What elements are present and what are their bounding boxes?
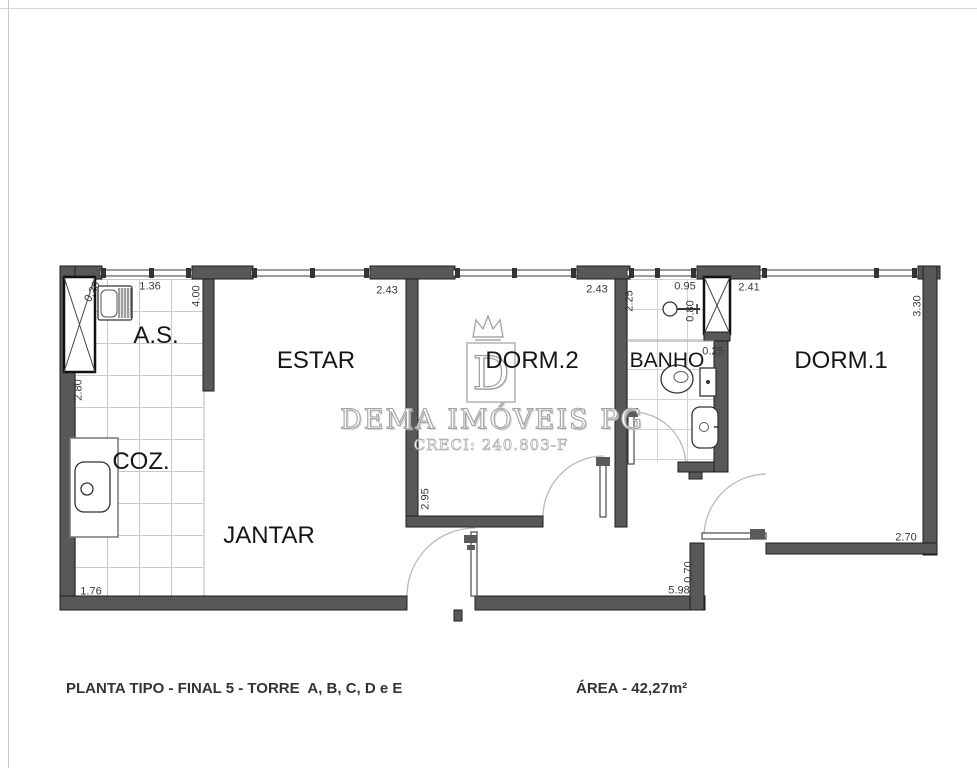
dimension-banho-depth: 2.25 [625, 290, 636, 311]
dimension-as-left: 2.80 [74, 379, 85, 400]
dimension-estar-window: 2.43 [376, 286, 397, 297]
dimension-estar-depth: 4.00 [192, 285, 203, 306]
dimension-bottom-wall: 5.98 [668, 586, 689, 597]
dorm2-door [596, 457, 610, 517]
dimension-dorm1-window: 2.41 [738, 283, 759, 294]
dimension-as-window: 1.36 [139, 282, 160, 293]
dimension-dorm2-window: 2.43 [586, 285, 607, 296]
dimension-shaft-ledge: 0.25 [702, 347, 723, 358]
dorm1-door-arc [704, 474, 766, 537]
laundry-tank-icon [98, 286, 132, 320]
dimension-dorm1-bottom: 2.70 [895, 533, 916, 544]
room-label-dorm2: DORM.2 [485, 347, 578, 375]
bathroom-sink-icon [692, 407, 719, 448]
plan-title: PLANTA TIPO - FINAL 5 - TORRE A, B, C, D… [66, 680, 402, 697]
room-label-jantar: JANTAR [223, 522, 315, 550]
entrance-door [464, 532, 477, 596]
dimension-shower: 0.80 [686, 300, 697, 321]
creci-number: CRECI: 240.803-F [414, 436, 568, 454]
crown-icon [468, 314, 508, 342]
banho-window [627, 270, 697, 276]
dimension-banho-width: 0.95 [674, 282, 695, 293]
dorm1-door [702, 529, 766, 539]
room-label-banho: BANHO [630, 349, 705, 373]
dimension-dorm2-depth: 2.95 [421, 488, 432, 509]
bathroom-duct [704, 277, 730, 341]
room-label-coz: COZ. [112, 448, 169, 476]
dimension-coz-bottom: 1.76 [80, 587, 101, 598]
agency-name: DEMA IMÓVEIS PG [340, 405, 644, 436]
dorm2-door-arc [543, 456, 604, 517]
dorm1-window [760, 270, 918, 276]
as-window [100, 270, 192, 276]
room-label-estar: ESTAR [277, 347, 355, 375]
floorplan-page: D DEMA IMÓVEIS PG CRECI: 240.803-F A.S. … [0, 0, 977, 768]
area-label: ÁREA - 42,27m² [576, 680, 687, 697]
room-label-dorm1: DORM.1 [794, 347, 887, 375]
dimension-step: 0.70 [684, 561, 695, 582]
shower-icon [627, 302, 714, 341]
kitchen-sink-icon [70, 438, 118, 537]
room-label-as: A.S. [133, 322, 178, 350]
dimension-dorm1-depth: 3.30 [913, 295, 924, 316]
